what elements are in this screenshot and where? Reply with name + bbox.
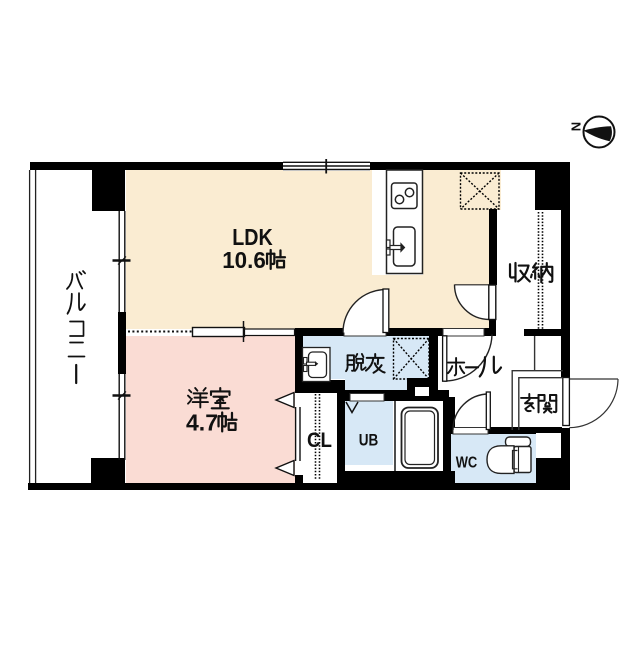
svg-text:WC: WC — [456, 454, 478, 471]
svg-text:4.7: 4.7 — [186, 409, 218, 435]
svg-text:N: N — [569, 122, 584, 131]
svg-text:10.6: 10.6 — [222, 247, 266, 273]
svg-text:CL: CL — [307, 429, 332, 452]
svg-text:UB: UB — [359, 430, 379, 449]
